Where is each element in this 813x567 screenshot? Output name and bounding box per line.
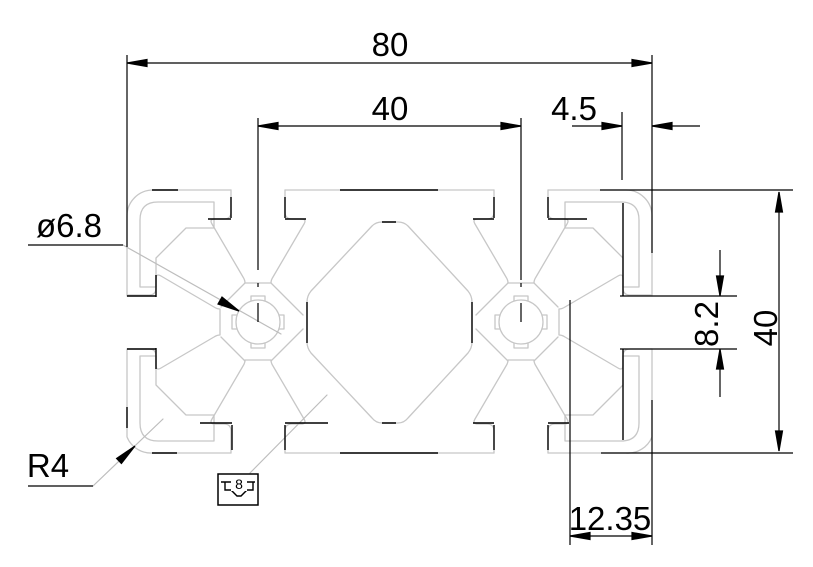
t-slot-bottom-left — [211, 360, 305, 453]
arrowhead — [117, 446, 135, 464]
leader-hole-diameter — [28, 245, 239, 311]
corner-cavity-top-right — [565, 202, 639, 287]
dim-label-overall-width: 80 — [360, 28, 420, 61]
web-diagonals — [221, 283, 558, 361]
profile-edge-accents — [127, 190, 623, 453]
slot-symbol-size-label: 8 — [231, 477, 247, 491]
dim-label-slot-opening-width: 8.2 — [690, 294, 724, 354]
technical-drawing-canvas: 80 40 4.5 ø6.8 8.2 40 R4 12.35 8 — [0, 0, 813, 567]
dim-label-slot-mouth-depth: 4.5 — [544, 92, 604, 125]
t-slot-bottom-right — [474, 360, 568, 453]
arrowhead — [258, 123, 278, 130]
corner-cavity-top-left — [140, 202, 214, 287]
dim-label-overall-height: 40 — [749, 298, 783, 358]
arrowhead — [776, 192, 783, 212]
dim-label-bottom-edge-offset: 12.35 — [560, 502, 660, 535]
arrowhead — [776, 431, 783, 451]
leader-line-shafts — [93, 245, 327, 486]
profile-outline — [127, 190, 652, 453]
arrowhead — [602, 123, 622, 130]
arrowhead — [652, 123, 672, 130]
dim-label-slot-pitch: 40 — [360, 92, 420, 125]
profile-outer-boundary — [127, 190, 652, 453]
dim-label-core-hole-diameter: ø6.8 — [19, 209, 119, 242]
hole-diameter-leader-shaft — [123, 245, 281, 334]
drawing-geometry — [0, 0, 813, 567]
arrowhead — [632, 60, 652, 67]
arrowhead — [501, 123, 521, 130]
corner-cavity-bottom-right — [565, 356, 639, 441]
corner-cavity-bottom-left — [140, 356, 214, 441]
dim-label-corner-radius: R4 — [18, 449, 78, 482]
t-slot-left — [127, 275, 220, 369]
arrowhead — [127, 60, 147, 67]
center-cavity-octagon — [307, 222, 472, 423]
slot-symbol-leader-shaft — [250, 395, 327, 473]
arrowhead — [717, 276, 724, 296]
t-slot-right — [559, 275, 652, 369]
dimension-lines — [28, 60, 783, 540]
